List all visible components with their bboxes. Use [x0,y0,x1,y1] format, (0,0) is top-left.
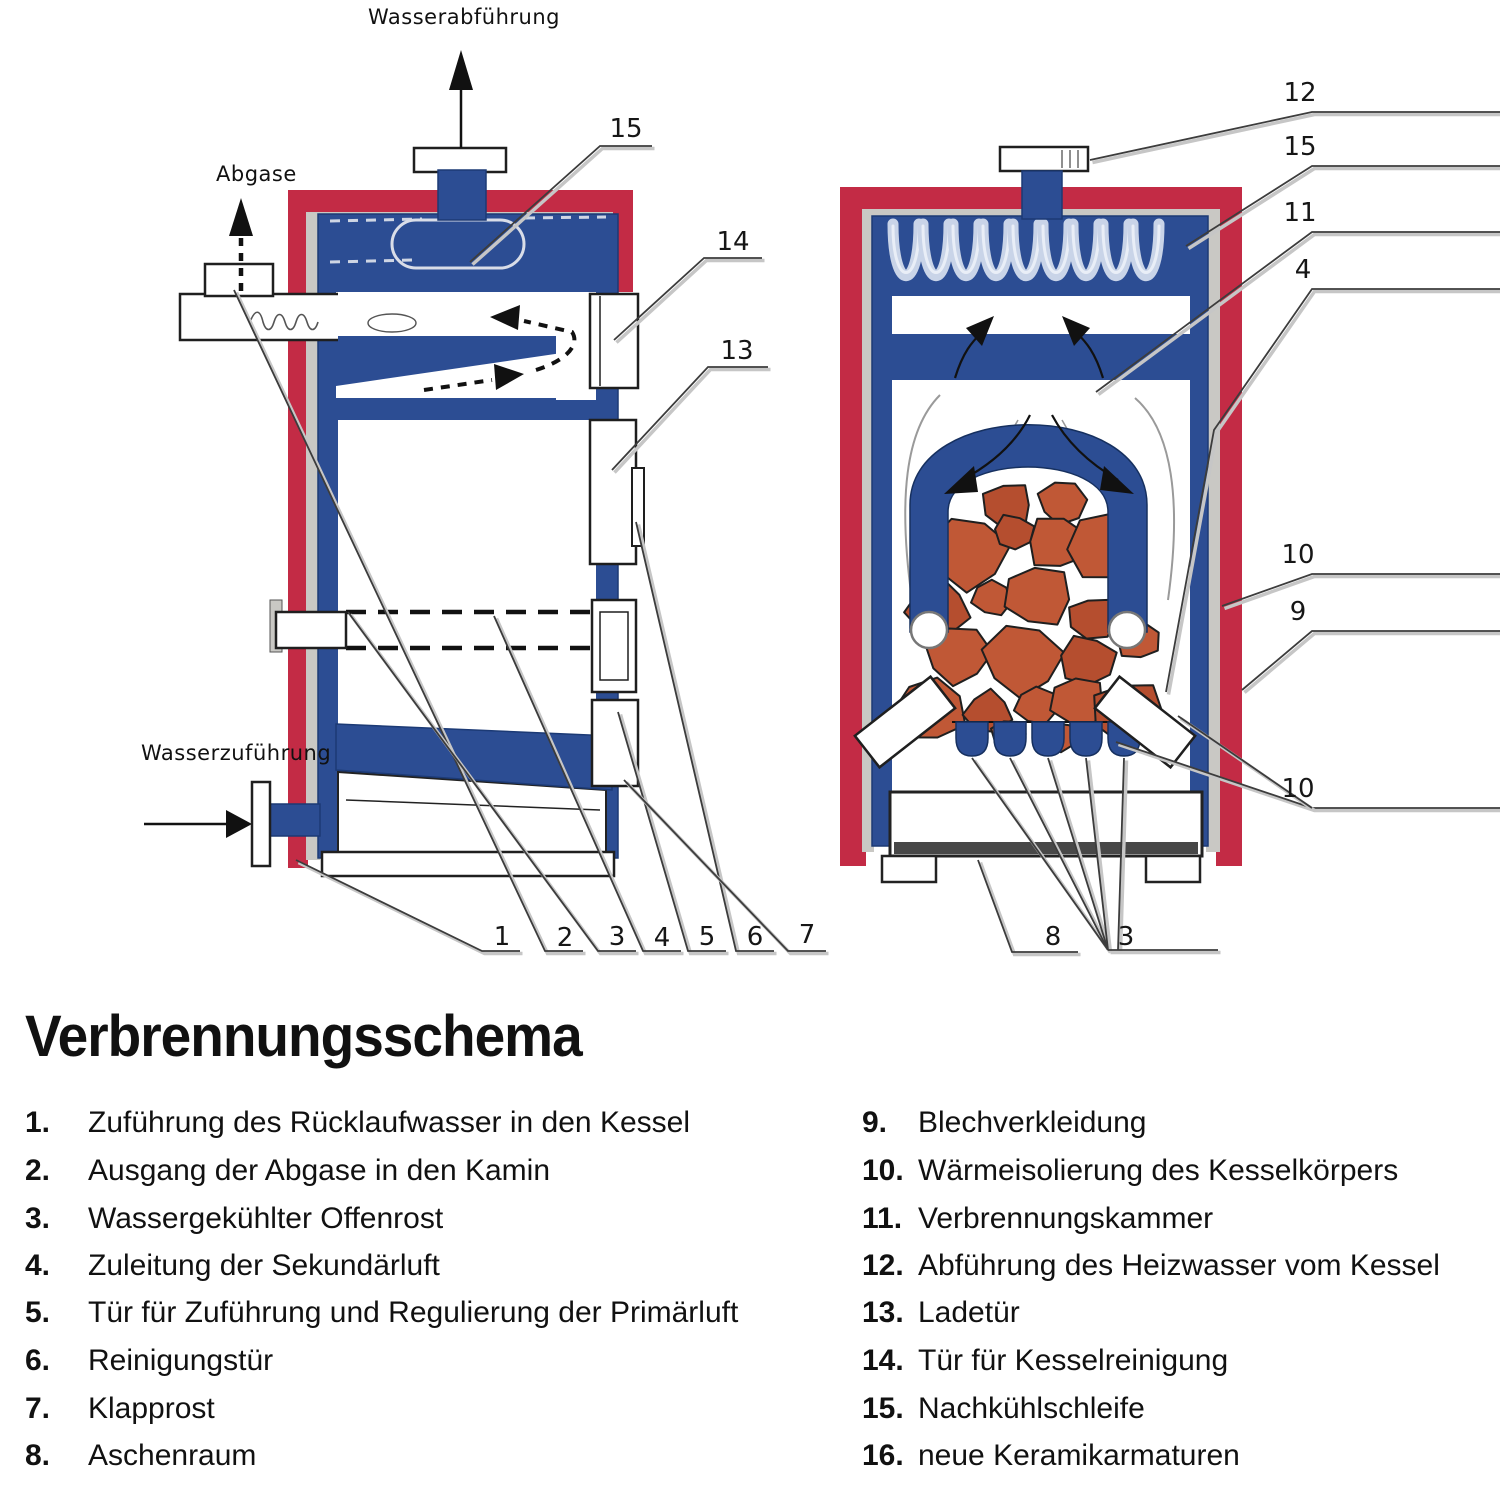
callout-8: 8 [1045,922,1062,952]
base-plate [322,852,614,876]
callout-3b: 3 [1118,922,1135,952]
callout-15: 15 [609,114,642,144]
legend-number: 13. [862,1296,918,1330]
legend-number: 12. [862,1249,918,1283]
primary-air-door-inner [600,612,628,680]
left-casing-red-left [288,190,308,868]
legend-item: 6.Reinigungstür [25,1344,273,1384]
secondary-air-stub [276,612,346,648]
return-flange [252,782,270,866]
callout-9: 9 [1290,597,1307,627]
legend-text: Klapprost [88,1392,215,1425]
arch-tube-right [1109,612,1145,648]
callout-12: 12 [1283,78,1316,108]
legend-text: Tür für Kesselreinigung [918,1344,1228,1377]
legend-text: neue Keramikarmaturen [918,1439,1240,1472]
legend-number: 15. [862,1392,918,1426]
legend-item: 4.Zuleitung der Sekundärluft [25,1249,440,1289]
return-pipe [268,804,320,836]
right-top-stem [1022,171,1062,219]
water-in-label: Wasserzuführung [141,741,331,765]
legend-text: Wärmeisolierung des Kesselkörpers [918,1154,1398,1187]
legend-number: 14. [862,1344,918,1378]
legend-number: 3. [25,1202,88,1236]
callout-2: 2 [557,923,574,953]
page-title: Verbrennungsschema [25,1002,582,1070]
foot-left [882,856,936,882]
legend-text: Tür für Zuführung und Regulierung der Pr… [88,1296,738,1329]
callout-6: 6 [747,922,764,952]
water-out-label: Wasserabführung [368,5,560,29]
callout-10-top: 10 [1281,540,1314,570]
left-top-stem [438,170,486,220]
arch-tube-left [911,612,947,648]
legend-number: 4. [25,1249,88,1283]
legend-text: Abführung des Heizwasser vom Kessel [918,1249,1440,1282]
legend-number: 16. [862,1439,918,1473]
legend-text: Nachkühlschleife [918,1392,1145,1425]
legend-item: 9.Blechverkleidung [862,1106,1146,1146]
legend-number: 5. [25,1296,88,1330]
legend-text: Ausgang der Abgase in den Kamin [88,1154,550,1187]
legend-number: 2. [25,1154,88,1188]
callout-13: 13 [720,336,753,366]
foot-right [1146,856,1200,882]
legend-item: 12.Abführung des Heizwasser vom Kessel [862,1249,1440,1289]
legend-item: 15.Nachkühlschleife [862,1392,1145,1432]
upper-gas-channel [892,296,1190,334]
flue-gas-label: Abgase [216,162,297,186]
callout-4b: 4 [1295,255,1312,285]
legend-text: Zuleitung der Sekundärluft [88,1249,440,1282]
chimney-duct [180,294,338,340]
legend-text: Ladetür [918,1296,1020,1329]
cleaning-door-upper [590,294,638,388]
callout-14: 14 [716,227,749,257]
legend-number: 9. [862,1106,918,1140]
grate-tube [1032,722,1064,756]
legend-text: Wassergekühlter Offenrost [88,1202,443,1235]
legend-item: 13.Ladetür [862,1296,1020,1336]
legend-item: 14.Tür für Kesselreinigung [862,1344,1228,1384]
legend-item: 5.Tür für Zuführung und Regulierung der … [25,1296,738,1336]
legend-text: Zuführung des Rücklaufwasser in den Kess… [88,1106,690,1139]
legend-number: 10. [862,1154,918,1188]
right-boiler [840,147,1242,882]
callout-11: 11 [1283,198,1316,228]
callout-1: 1 [494,922,511,952]
legend-item: 11.Verbrennungskammer [862,1202,1213,1242]
legend-text: Aschenraum [88,1439,256,1472]
ash-pan-bottom [894,842,1198,854]
legend-text: Reinigungstür [88,1344,273,1377]
callout-15b: 15 [1283,132,1316,162]
legend-number: 6. [25,1344,88,1378]
legend-number: 1. [25,1106,88,1140]
left-top-flange [414,148,506,172]
water-out-arrow [449,50,473,90]
grate-tube [956,722,988,756]
callout-7: 7 [799,920,816,950]
legend-item: 2.Ausgang der Abgase in den Kamin [25,1154,550,1194]
combustion-chamber-left [338,420,596,738]
water-cooled-grate-tubes [956,722,1140,756]
ash-door [592,700,638,786]
legend-item: 8.Aschenraum [25,1439,256,1479]
legend-item: 16.neue Keramikarmaturen [862,1439,1240,1479]
legend-item: 1.Zuführung des Rücklaufwasser in den Ke… [25,1106,690,1146]
legend-text: Blechverkleidung [918,1106,1146,1139]
grate-tube [1070,722,1102,756]
flue-gas-arrow [229,198,253,236]
water-in-arrow [226,810,252,838]
legend-text: Verbrennungskammer [918,1202,1213,1235]
legend-item: 3.Wassergekühlter Offenrost [25,1202,443,1242]
legend-number: 8. [25,1439,88,1473]
legend-number: 11. [862,1202,918,1236]
legend-item: 10.Wärmeisolierung des Kesselkörpers [862,1154,1398,1194]
loading-door [590,420,636,564]
right-top-flange [1000,147,1088,171]
page: Wasserabführung Abgase Wasserzuführung 1… [0,0,1500,1500]
callout-4: 4 [654,923,671,953]
callout-5: 5 [699,922,716,952]
callout-10-bottom: 10 [1281,774,1314,804]
legend-number: 7. [25,1392,88,1426]
callout-3: 3 [609,922,626,952]
legend-item: 7.Klapprost [25,1392,215,1432]
grate-tube [994,722,1026,756]
boiler-diagram-canvas [0,0,1500,1000]
